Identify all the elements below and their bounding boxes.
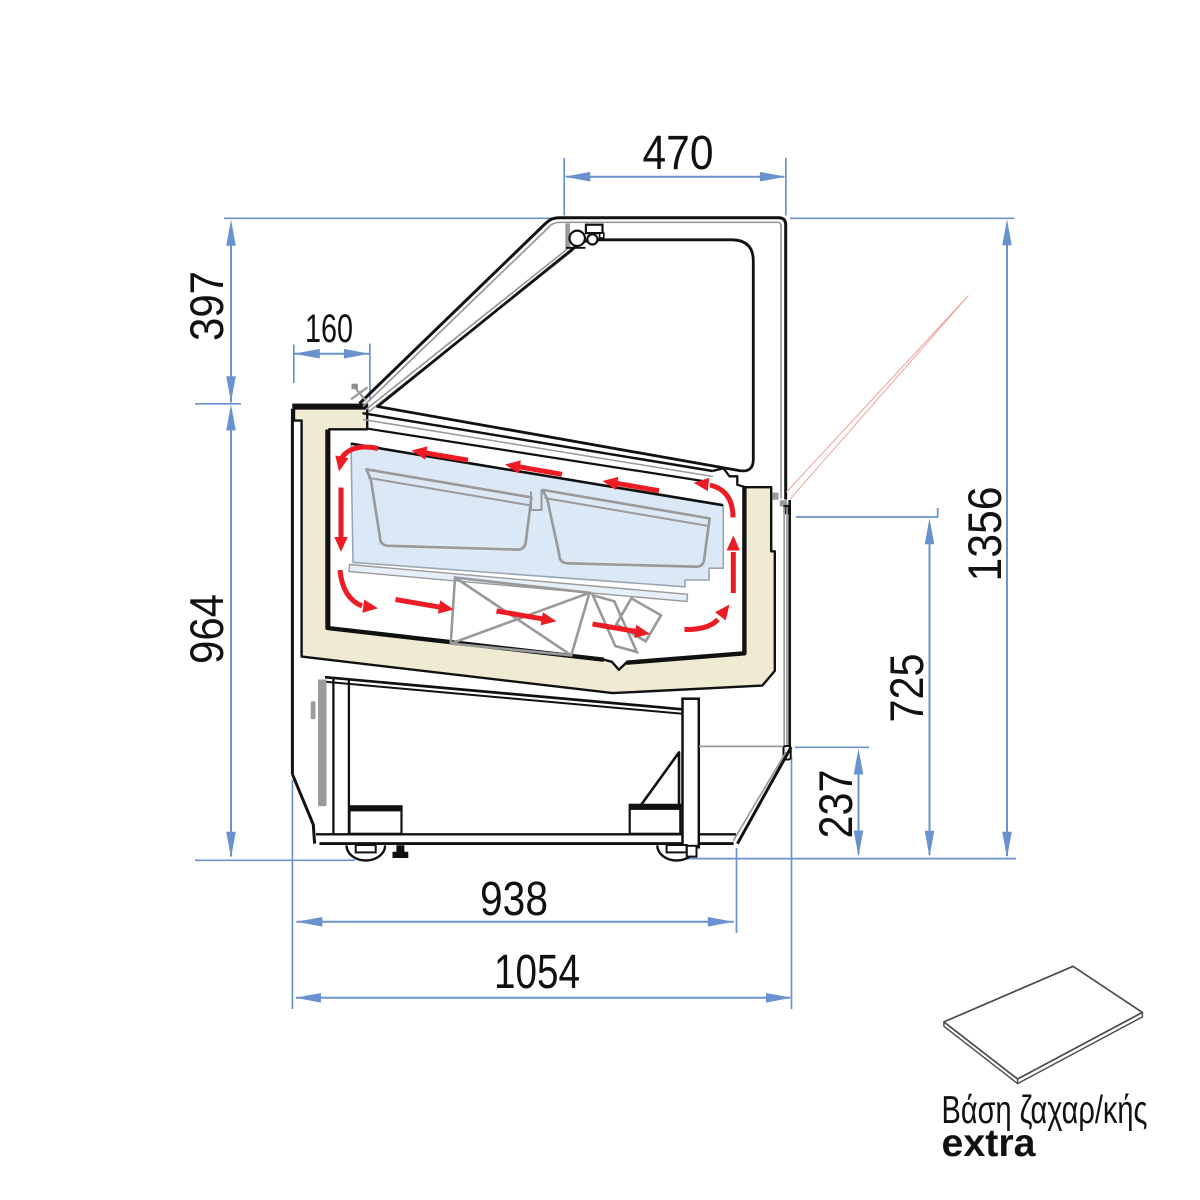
svg-text:160: 160 bbox=[305, 307, 353, 351]
svg-text:extra: extra bbox=[942, 1122, 1037, 1165]
svg-text:1356: 1356 bbox=[958, 487, 1011, 582]
svg-text:1054: 1054 bbox=[494, 946, 580, 999]
svg-text:938: 938 bbox=[480, 873, 548, 926]
svg-text:237: 237 bbox=[809, 770, 862, 839]
svg-text:725: 725 bbox=[880, 654, 933, 723]
svg-text:397: 397 bbox=[180, 271, 233, 341]
svg-text:964: 964 bbox=[180, 594, 233, 664]
svg-text:470: 470 bbox=[643, 127, 714, 180]
